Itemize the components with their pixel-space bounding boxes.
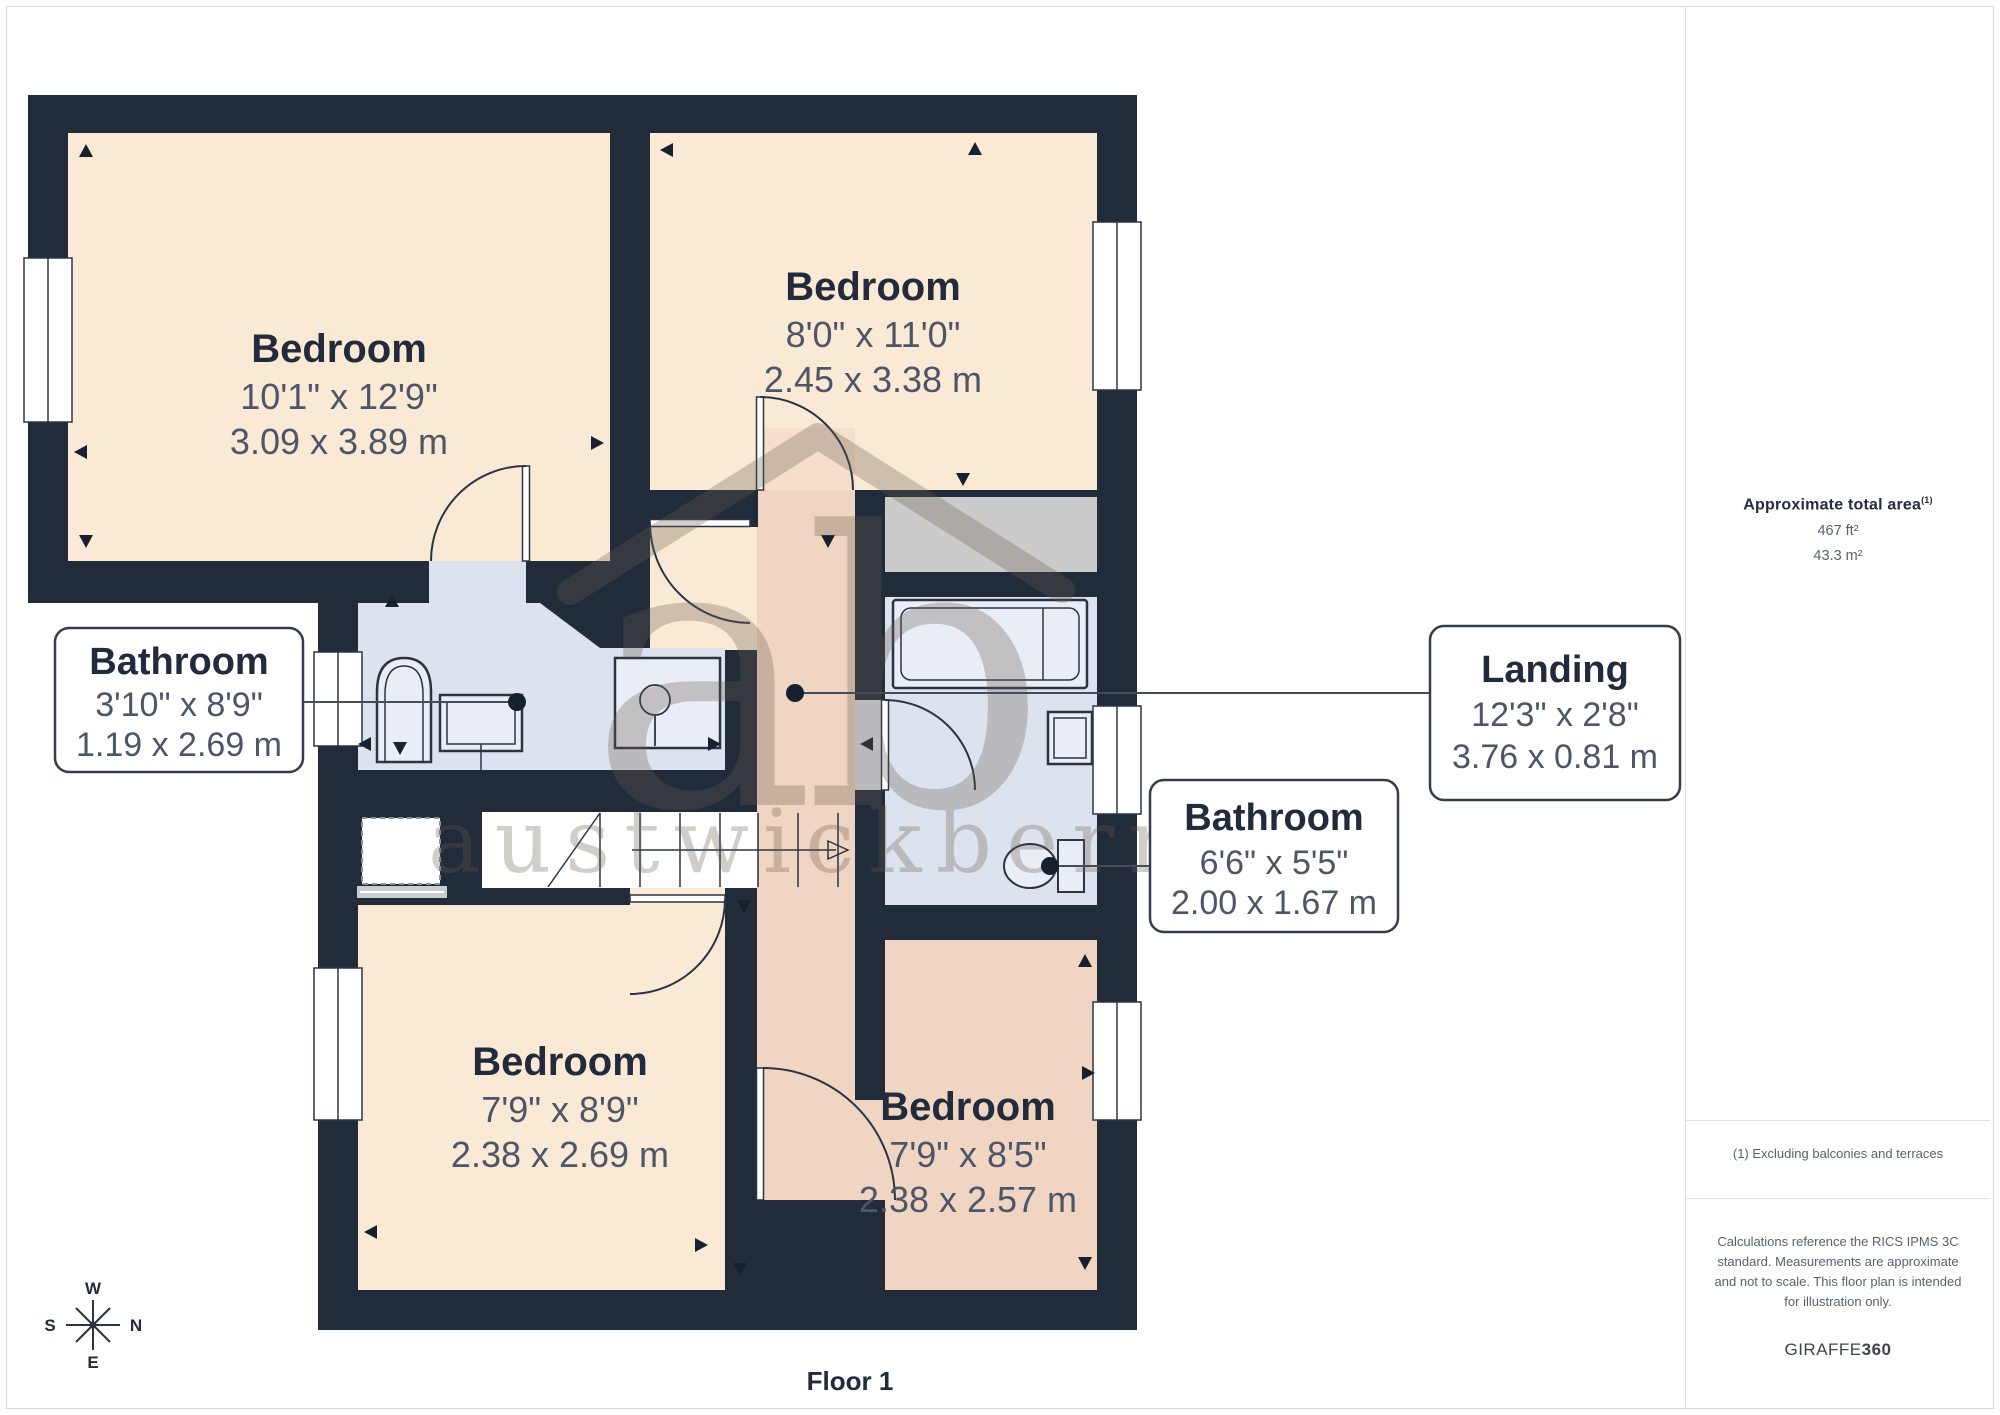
label-bedroom-top-right: Bedroom 8'0" x 11'0" 2.45 x 3.38 m xyxy=(764,265,982,400)
window-left-bathroom xyxy=(314,652,362,746)
svg-text:3'10" x 8'9": 3'10" x 8'9" xyxy=(95,686,263,724)
callout-landing: Landing 12'3" x 2'8" 3.76 x 0.81 m xyxy=(1430,626,1680,800)
compass: W E S N xyxy=(44,1279,142,1372)
svg-text:8'0" x 11'0": 8'0" x 11'0" xyxy=(786,314,961,355)
svg-text:6'6" x 5'5": 6'6" x 5'5" xyxy=(1200,844,1349,882)
sidebar-rule-1 xyxy=(1686,1120,1990,1121)
compass-w: W xyxy=(85,1279,102,1298)
svg-text:7'9" x 8'9": 7'9" x 8'9" xyxy=(481,1089,638,1130)
svg-text:Bathroom: Bathroom xyxy=(1184,797,1363,839)
svg-text:Bedroom: Bedroom xyxy=(880,1085,1056,1129)
brand-suffix: 360 xyxy=(1862,1340,1892,1359)
svg-text:2.38 x 2.57 m: 2.38 x 2.57 m xyxy=(859,1179,1077,1220)
area-m: 43.3 m² xyxy=(1690,548,1986,564)
svg-text:1.19 x 2.69 m: 1.19 x 2.69 m xyxy=(76,726,282,764)
area-footnote-marker: (1) xyxy=(1921,495,1933,505)
svg-text:2.45 x 3.38 m: 2.45 x 3.38 m xyxy=(764,359,982,400)
svg-text:12'3" x 2'8": 12'3" x 2'8" xyxy=(1471,696,1639,734)
svg-text:3.76 x 0.81 m: 3.76 x 0.81 m xyxy=(1452,738,1658,776)
brand-logo: GIRAFFE360 xyxy=(1686,1340,1990,1360)
window-left-lower xyxy=(314,968,362,1120)
svg-text:Bedroom: Bedroom xyxy=(785,265,961,309)
callout-bathroom-left: Bathroom 3'10" x 8'9" 1.19 x 2.69 m xyxy=(55,628,303,772)
floor-label: Floor 1 xyxy=(807,1366,894,1396)
svg-text:Bedroom: Bedroom xyxy=(472,1040,648,1084)
compass-e: E xyxy=(87,1353,98,1372)
watermark-name: austwickberry xyxy=(428,790,1248,893)
sink-right xyxy=(1048,712,1092,764)
room-bedroom-top-right xyxy=(650,133,1097,490)
svg-text:3.09 x 3.89 m: 3.09 x 3.89 m xyxy=(230,421,448,462)
approximate-area-block: Approximate total area(1) 467 ft² 43.3 m… xyxy=(1690,495,1986,564)
compass-s: S xyxy=(44,1316,55,1335)
svg-text:Bathroom: Bathroom xyxy=(89,641,268,683)
svg-text:2.00 x 1.67 m: 2.00 x 1.67 m xyxy=(1171,884,1377,922)
area-ft: 467 ft² xyxy=(1690,523,1986,539)
sidebar-rule-2 xyxy=(1686,1198,1990,1199)
window-left-upper xyxy=(24,258,72,422)
svg-text:10'1" x 12'9": 10'1" x 12'9" xyxy=(240,376,437,417)
svg-text:Bedroom: Bedroom xyxy=(251,327,427,371)
label-bedroom-bottom-left: Bedroom 7'9" x 8'9" 2.38 x 2.69 m xyxy=(451,1040,669,1175)
svg-text:7'9" x 8'5": 7'9" x 8'5" xyxy=(889,1134,1046,1175)
label-bedroom-top-left: Bedroom 10'1" x 12'9" 3.09 x 3.89 m xyxy=(230,327,448,462)
label-bedroom-bottom-right: Bedroom 7'9" x 8'5" 2.38 x 2.57 m xyxy=(859,1085,1077,1220)
brand-name: GIRAFFE xyxy=(1784,1340,1861,1359)
svg-text:Landing: Landing xyxy=(1481,649,1629,691)
area-title: Approximate total area(1) xyxy=(1690,495,1986,514)
disclaimer: Calculations reference the RICS IPMS 3C … xyxy=(1706,1232,1970,1313)
sidebar-divider xyxy=(1685,7,1686,1407)
svg-text:2.38 x 2.69 m: 2.38 x 2.69 m xyxy=(451,1134,669,1175)
window-right-upper xyxy=(1093,222,1141,390)
callout-bathroom-right: Bathroom 6'6" x 5'5" 2.00 x 1.67 m xyxy=(1150,780,1398,932)
footnote: (1) Excluding balconies and terraces xyxy=(1694,1146,1982,1161)
compass-n: N xyxy=(130,1316,142,1335)
floor-plan: ab austwickberry Bedroom 10'1" x 12'9" 3… xyxy=(0,0,1690,1415)
window-right-lower xyxy=(1093,1002,1141,1120)
